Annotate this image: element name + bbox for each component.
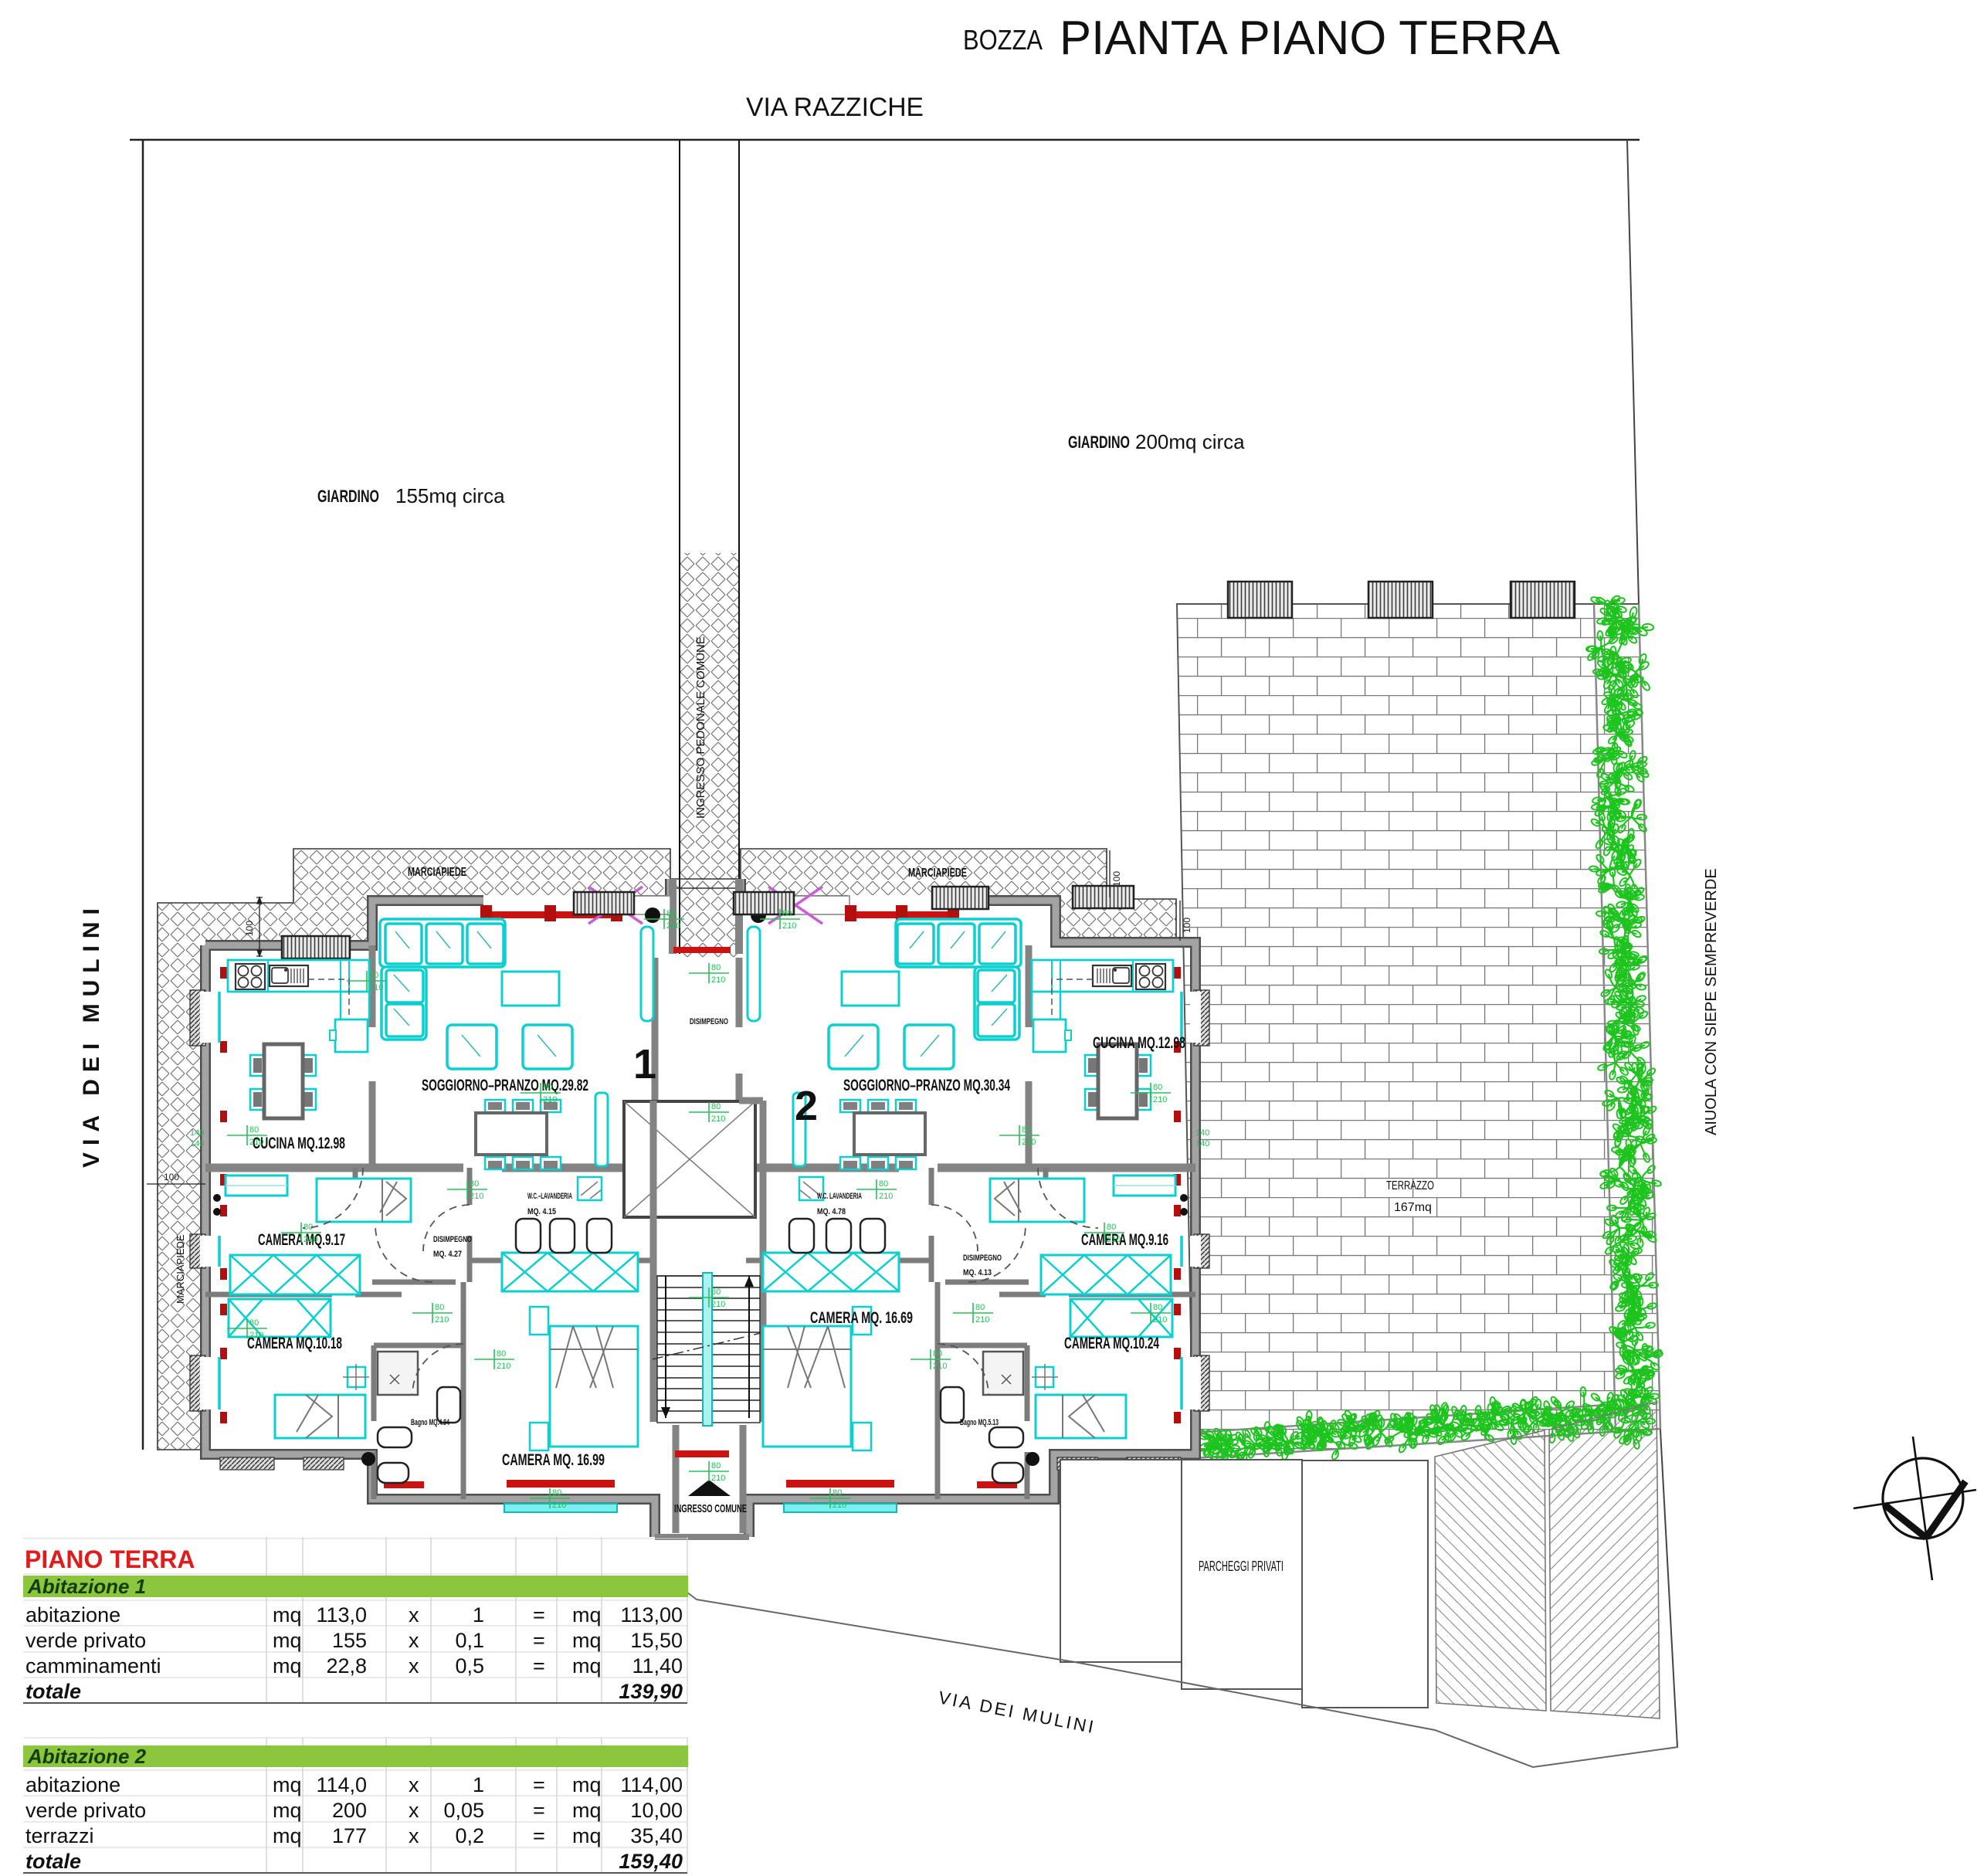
svg-text:MARCIAPIEDE: MARCIAPIEDE xyxy=(175,1234,186,1304)
svg-text:210: 210 xyxy=(1107,1235,1121,1244)
svg-text:totale: totale xyxy=(25,1850,81,1873)
svg-text:W.C. LAVANDERIA: W.C. LAVANDERIA xyxy=(817,1192,862,1201)
svg-text:=: = xyxy=(533,1603,545,1627)
svg-text:PARCHEGGI PRIVATI: PARCHEGGI PRIVATI xyxy=(1199,1559,1284,1574)
svg-text:80: 80 xyxy=(1153,1083,1162,1092)
svg-text:210: 210 xyxy=(711,975,725,985)
svg-text:mq: mq xyxy=(273,1654,302,1678)
svg-text:=: = xyxy=(533,1799,545,1822)
svg-text:0,05: 0,05 xyxy=(443,1799,484,1822)
svg-text:SOGGIORNO–PRANZO MQ.29.82: SOGGIORNO–PRANZO MQ.29.82 xyxy=(422,1077,588,1094)
svg-text:INGRESSO PEDONALE COMUNE: INGRESSO PEDONALE COMUNE xyxy=(694,636,707,819)
svg-text:abitazione: abitazione xyxy=(25,1603,120,1627)
svg-text:CUCINA MQ.12.98: CUCINA MQ.12.98 xyxy=(253,1135,345,1152)
svg-text:mq: mq xyxy=(273,1603,302,1627)
svg-text:Bagno MQ.5.13: Bagno MQ.5.13 xyxy=(960,1418,999,1427)
svg-text:MARCIAPIEDE: MARCIAPIEDE xyxy=(408,866,466,879)
svg-text:1: 1 xyxy=(473,1603,484,1627)
svg-text:210: 210 xyxy=(879,1192,893,1201)
svg-text:210: 210 xyxy=(833,1501,846,1510)
svg-text:1: 1 xyxy=(473,1773,484,1796)
svg-text:100: 100 xyxy=(1182,918,1192,933)
svg-text:CAMERA MQ. 16.99: CAMERA MQ. 16.99 xyxy=(502,1451,605,1469)
svg-text:155mq circa: 155mq circa xyxy=(395,484,505,507)
svg-text:BOZZA: BOZZA xyxy=(963,24,1043,56)
svg-text:SOGGIORNO–PRANZO MQ.30.34: SOGGIORNO–PRANZO MQ.30.34 xyxy=(843,1077,1010,1094)
svg-text:CUCINA MQ.12.98: CUCINA MQ.12.98 xyxy=(1093,1034,1185,1052)
svg-text:x: x xyxy=(409,1773,419,1796)
svg-text:140: 140 xyxy=(190,1139,204,1148)
svg-text:MQ. 4.13: MQ. 4.13 xyxy=(963,1268,992,1277)
svg-text:80: 80 xyxy=(249,1318,259,1328)
svg-text:AIUOLA CON SIEPE SEMPREVERD: AIUOLA CON SIEPE SEMPREVERDE xyxy=(1703,868,1720,1135)
svg-text:210: 210 xyxy=(543,1095,557,1104)
svg-text:terrazzi: terrazzi xyxy=(25,1824,94,1847)
svg-text:10,00: 10,00 xyxy=(630,1799,683,1822)
svg-text:80: 80 xyxy=(369,971,378,980)
svg-text:1: 1 xyxy=(633,1041,656,1087)
svg-text:MQ. 4.27: MQ. 4.27 xyxy=(433,1250,462,1259)
svg-text:200: 200 xyxy=(332,1799,367,1822)
svg-text:CAMERA MQ. 16.69: CAMERA MQ. 16.69 xyxy=(810,1309,913,1327)
svg-text:100: 100 xyxy=(1111,871,1122,887)
svg-text:80: 80 xyxy=(711,1461,721,1471)
svg-text:DISIMPEGNO: DISIMPEGNO xyxy=(433,1235,472,1244)
svg-text:mq: mq xyxy=(273,1824,302,1847)
svg-text:camminamenti: camminamenti xyxy=(25,1654,161,1678)
svg-text:210: 210 xyxy=(1153,1315,1167,1325)
svg-text:210: 210 xyxy=(249,1331,263,1340)
svg-text:x: x xyxy=(409,1654,419,1678)
svg-text:210: 210 xyxy=(1022,1138,1036,1147)
svg-text:x: x xyxy=(409,1799,419,1822)
svg-text:80: 80 xyxy=(711,1102,721,1111)
svg-text:80: 80 xyxy=(782,909,792,918)
svg-text:80: 80 xyxy=(1022,1125,1031,1135)
svg-text:80: 80 xyxy=(833,1488,842,1498)
svg-text:80: 80 xyxy=(666,909,676,918)
svg-text:177: 177 xyxy=(332,1824,367,1847)
svg-text:200mq circa: 200mq circa xyxy=(1135,430,1245,453)
svg-text:210: 210 xyxy=(933,1362,947,1371)
svg-text:=: = xyxy=(533,1824,545,1847)
svg-text:80: 80 xyxy=(552,1488,561,1498)
svg-text:mq: mq xyxy=(572,1654,602,1678)
svg-text:139,90: 139,90 xyxy=(619,1680,683,1703)
svg-text:0,2: 0,2 xyxy=(455,1824,484,1847)
svg-text:mq: mq xyxy=(572,1603,602,1627)
svg-text:80: 80 xyxy=(497,1349,506,1359)
svg-text:167mq: 167mq xyxy=(1394,1201,1432,1214)
svg-text:80: 80 xyxy=(975,1303,985,1312)
svg-text:MARCIAPIEDE: MARCIAPIEDE xyxy=(908,867,967,880)
svg-text:80: 80 xyxy=(249,1125,259,1135)
svg-text:210: 210 xyxy=(975,1315,989,1325)
svg-text:80: 80 xyxy=(435,1303,444,1312)
svg-text:TERRAZZO: TERRAZZO xyxy=(1386,1179,1434,1192)
svg-text:140: 140 xyxy=(190,1128,204,1138)
svg-text:80: 80 xyxy=(933,1349,942,1359)
svg-text:210: 210 xyxy=(470,1192,483,1201)
svg-text:113,0: 113,0 xyxy=(316,1603,367,1627)
svg-text:=: = xyxy=(533,1629,545,1652)
svg-text:140: 140 xyxy=(1195,1139,1209,1148)
svg-text:verde privato: verde privato xyxy=(25,1629,146,1652)
svg-text:MQ. 4.78: MQ. 4.78 xyxy=(817,1207,846,1216)
svg-text:155: 155 xyxy=(332,1629,367,1652)
svg-text:PIANTA PIANO TERRA: PIANTA PIANO TERRA xyxy=(1060,12,1561,65)
svg-text:mq: mq xyxy=(273,1799,302,1822)
svg-text:GIARDINO: GIARDINO xyxy=(1068,433,1130,452)
svg-text:mq: mq xyxy=(572,1773,602,1796)
svg-text:210: 210 xyxy=(552,1501,566,1510)
svg-text:2: 2 xyxy=(795,1083,818,1129)
svg-text:210: 210 xyxy=(711,1474,725,1483)
svg-text:11,40: 11,40 xyxy=(632,1654,683,1678)
svg-text:0,5: 0,5 xyxy=(455,1654,484,1678)
svg-text:80: 80 xyxy=(1153,1303,1162,1312)
svg-text:mq: mq xyxy=(572,1629,602,1652)
svg-text:210: 210 xyxy=(711,1300,725,1309)
svg-text:mq: mq xyxy=(273,1773,302,1796)
svg-text:113,00: 113,00 xyxy=(620,1603,683,1627)
svg-text:0,1: 0,1 xyxy=(455,1629,484,1652)
svg-text:100: 100 xyxy=(244,921,255,936)
svg-text:210: 210 xyxy=(304,1235,317,1244)
svg-text:114,0: 114,0 xyxy=(316,1773,367,1796)
svg-text:=: = xyxy=(533,1773,545,1796)
svg-text:x: x xyxy=(409,1629,419,1652)
svg-text:80: 80 xyxy=(711,963,721,972)
svg-text:verde privato: verde privato xyxy=(25,1799,146,1822)
svg-text:x: x xyxy=(409,1824,419,1847)
svg-text:210: 210 xyxy=(711,1114,725,1124)
svg-text:210: 210 xyxy=(435,1315,449,1325)
svg-text:35,40: 35,40 xyxy=(630,1824,683,1847)
svg-text:Abitazione 2: Abitazione 2 xyxy=(27,1745,147,1768)
svg-text:DISIMPEGNO: DISIMPEGNO xyxy=(963,1253,1002,1263)
svg-text:22,8: 22,8 xyxy=(326,1654,367,1678)
svg-text:PIANO TERRA: PIANO TERRA xyxy=(25,1545,195,1573)
svg-text:abitazione: abitazione xyxy=(25,1773,120,1796)
svg-text:x: x xyxy=(409,1603,419,1627)
svg-text:80: 80 xyxy=(711,1287,721,1297)
svg-text:INGRESSO COMUNE: INGRESSO COMUNE xyxy=(674,1502,747,1515)
svg-text:114,00: 114,00 xyxy=(620,1773,683,1796)
svg-text:15,50: 15,50 xyxy=(630,1629,683,1652)
svg-text:mq: mq xyxy=(273,1629,302,1652)
svg-text:W.C.–LAVANDERIA: W.C.–LAVANDERIA xyxy=(527,1192,572,1201)
svg-text:210: 210 xyxy=(249,1138,263,1147)
svg-text:210: 210 xyxy=(369,983,383,992)
svg-text:140: 140 xyxy=(1195,1128,1209,1138)
svg-text:VIA DEI MULINI: VIA DEI MULINI xyxy=(79,901,104,1168)
svg-text:totale: totale xyxy=(25,1680,81,1703)
svg-text:100: 100 xyxy=(164,1172,179,1182)
svg-text:CAMERA MQ.9.16: CAMERA MQ.9.16 xyxy=(1081,1231,1168,1249)
svg-text:210: 210 xyxy=(1153,1095,1167,1104)
svg-text:80: 80 xyxy=(1107,1223,1116,1232)
svg-text:80: 80 xyxy=(470,1179,479,1189)
svg-text:80: 80 xyxy=(543,1083,552,1092)
svg-text:210: 210 xyxy=(782,921,796,931)
svg-text:80: 80 xyxy=(879,1179,888,1189)
svg-text:159,40: 159,40 xyxy=(619,1850,683,1873)
svg-text:GIARDINO: GIARDINO xyxy=(317,487,379,506)
svg-text:VIA RAZZICHE: VIA RAZZICHE xyxy=(746,93,924,122)
svg-text:CAMERA MQ.10.24: CAMERA MQ.10.24 xyxy=(1064,1335,1159,1352)
svg-text:mq: mq xyxy=(572,1824,602,1847)
svg-text:DISIMPEGNO: DISIMPEGNO xyxy=(690,1017,728,1026)
svg-text:=: = xyxy=(533,1654,545,1678)
svg-text:mq: mq xyxy=(572,1799,602,1822)
svg-text:210: 210 xyxy=(666,921,680,931)
svg-text:Bagno MQ.4.94: Bagno MQ.4.94 xyxy=(411,1418,450,1427)
svg-text:MQ. 4.15: MQ. 4.15 xyxy=(527,1207,556,1216)
svg-text:210: 210 xyxy=(497,1362,510,1371)
svg-text:Abitazione 1: Abitazione 1 xyxy=(27,1575,146,1598)
